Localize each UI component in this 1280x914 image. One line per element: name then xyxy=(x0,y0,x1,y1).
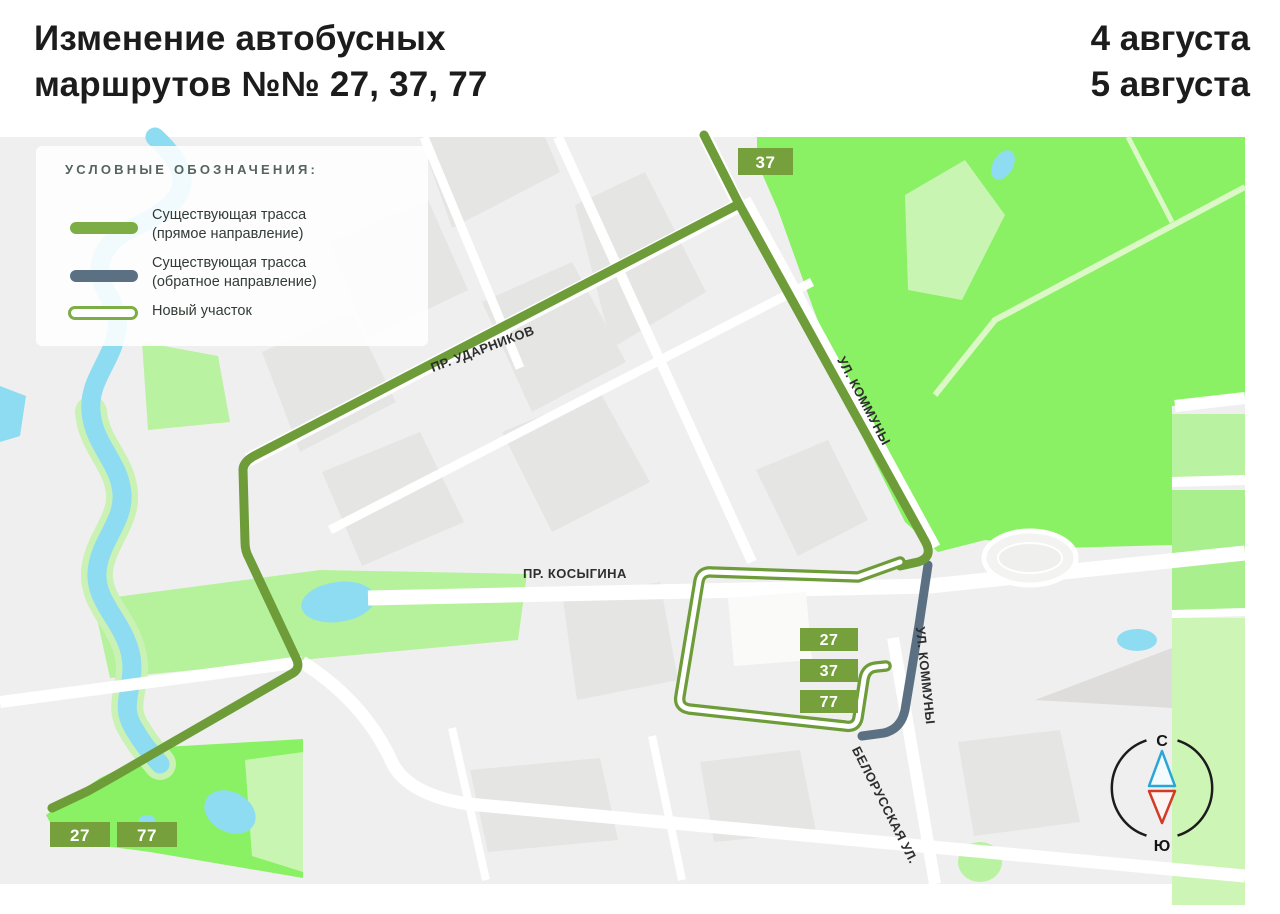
badge-27-stack-label: 27 xyxy=(820,632,839,649)
route-badge-37-stack: 37 xyxy=(800,659,858,682)
compass-south-label: Ю xyxy=(1154,838,1171,855)
legend-backdrop xyxy=(36,146,428,346)
route-badge-27-stack: 27 xyxy=(800,628,858,651)
badge-27-bottom-label: 27 xyxy=(70,826,90,845)
badge-77-bottom-label: 77 xyxy=(137,826,157,845)
compass-north-label: С xyxy=(1156,733,1168,750)
date-line1: 4 августа xyxy=(1091,16,1250,62)
date-range: 4 августа 5 августа xyxy=(1091,16,1250,107)
route-map: ПР. УДАРНИКОВ УЛ. КОММУНЫ ПР. КОСЫГИНА У… xyxy=(0,0,1280,914)
badge-77-stack-label: 77 xyxy=(820,694,839,711)
badge-37-top-label: 37 xyxy=(756,153,776,172)
date-line2: 5 августа xyxy=(1091,62,1250,108)
page-title-line2: маршрутов №№ 27, 37, 77 xyxy=(34,62,488,108)
route-badge-27-bottom: 27 xyxy=(50,822,110,847)
page-title-line1: Изменение автобусных xyxy=(34,16,488,62)
route-badge-77-bottom: 77 xyxy=(117,822,177,847)
street-label-kosygina: ПР. КОСЫГИНА xyxy=(523,566,627,581)
page-title: Изменение автобусных маршрутов №№ 27, 37… xyxy=(34,16,488,107)
poster-page: ПР. УДАРНИКОВ УЛ. КОММУНЫ ПР. КОСЫГИНА У… xyxy=(0,0,1280,914)
route-badge-37-top: 37 xyxy=(738,148,793,175)
badge-37-stack-label: 37 xyxy=(820,663,839,680)
route-badge-77-stack: 77 xyxy=(800,690,858,713)
